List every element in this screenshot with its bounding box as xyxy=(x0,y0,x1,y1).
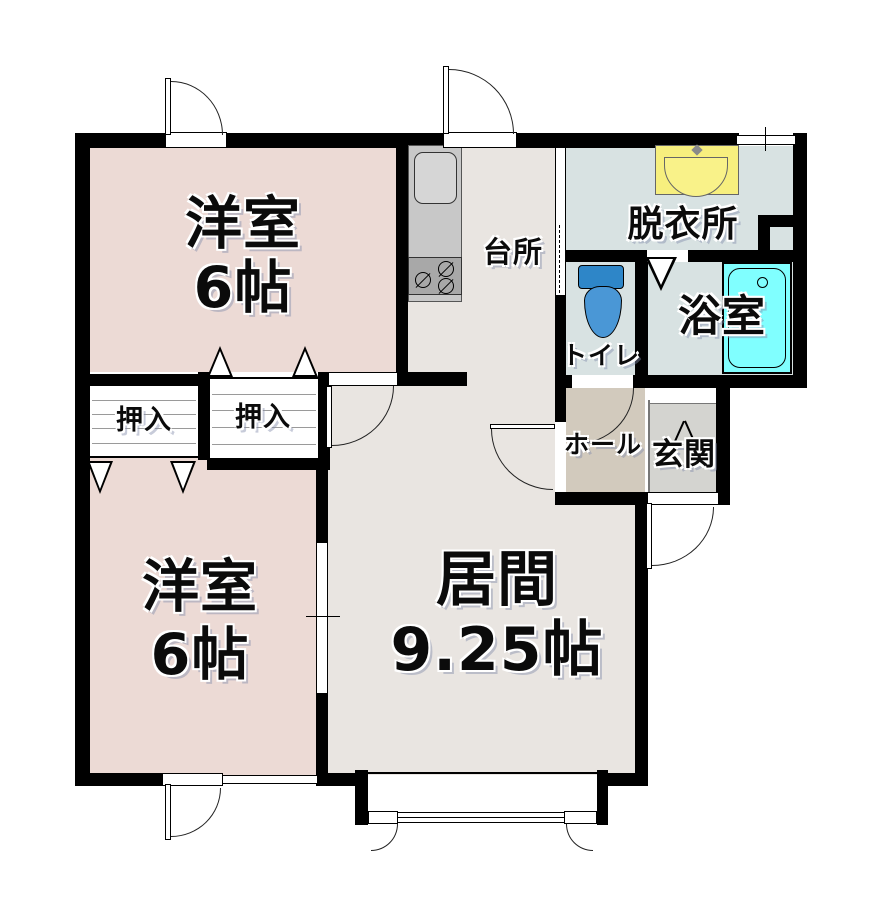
bay-edge-line xyxy=(368,772,597,774)
door-swing-marker xyxy=(90,463,110,489)
room-name: 洋室 xyxy=(185,192,301,256)
sliding-door xyxy=(316,543,328,693)
wall-segment xyxy=(75,374,198,386)
door-sill xyxy=(328,372,398,386)
door-sill xyxy=(443,132,517,148)
closet-label-lower: 押入 xyxy=(116,407,172,434)
sliding-door-dash xyxy=(559,225,560,293)
room-label-living: 居間 9.25帖 xyxy=(390,545,603,685)
wall-segment xyxy=(557,250,647,262)
wall-segment xyxy=(633,375,807,388)
wall-segment xyxy=(597,770,608,825)
window xyxy=(223,775,317,784)
door-swing-marker xyxy=(173,463,193,489)
door-sill xyxy=(162,773,223,786)
room-label-toilet: トイレ xyxy=(562,343,640,368)
sliding-door-tick xyxy=(306,616,340,617)
stove-burner xyxy=(438,278,454,294)
room-label-hall: ホール xyxy=(564,432,642,457)
room-label-kitchen: 台所 xyxy=(483,238,543,267)
room-label-bedroom-bottom: 洋室 6帖 xyxy=(142,553,258,689)
room-area: 6帖 xyxy=(142,621,258,689)
wall-segment xyxy=(316,460,328,545)
room-name: 洋室 xyxy=(142,553,258,621)
wall-segment xyxy=(396,148,408,374)
wall-segment xyxy=(608,773,648,786)
bath-door-marker xyxy=(649,259,673,285)
wall-segment xyxy=(75,773,162,786)
door-arc xyxy=(171,788,221,837)
stove-burner xyxy=(438,261,454,277)
wall-segment xyxy=(555,492,650,505)
door-arc xyxy=(652,507,714,566)
room-label-bath: 浴室 xyxy=(678,296,766,339)
balcony-window-end xyxy=(368,811,398,824)
wall-segment xyxy=(716,388,730,505)
window-tick xyxy=(765,127,766,151)
wall-segment xyxy=(355,770,368,825)
bathtub-drain xyxy=(757,277,768,288)
balcony-window-end xyxy=(564,811,597,824)
wall-segment xyxy=(207,458,330,470)
room-name: 居間 xyxy=(390,545,603,615)
wall-segment xyxy=(793,133,807,387)
wall-segment xyxy=(716,492,730,505)
door-swing-marker xyxy=(295,351,315,375)
closet-shelf-line xyxy=(92,400,196,401)
wall-segment xyxy=(316,691,328,786)
entrance-door-sill xyxy=(648,492,718,505)
wall-segment xyxy=(688,250,793,262)
balcony-shutter-arc xyxy=(371,824,398,851)
closet-shelf-line xyxy=(212,444,316,445)
window xyxy=(737,135,795,145)
closet-label-upper: 押入 xyxy=(235,404,291,431)
balcony-window-line xyxy=(397,817,565,818)
door-arc xyxy=(171,81,223,135)
door-arc xyxy=(449,69,514,134)
room-area: 6帖 xyxy=(185,256,301,320)
door-opening xyxy=(572,375,633,388)
closet-edge-line xyxy=(90,456,198,458)
wall-segment xyxy=(198,372,210,460)
room-area: 9.25帖 xyxy=(390,615,603,685)
room-label-bedroom-top: 洋室 6帖 xyxy=(185,192,301,320)
balcony-shutter-arc xyxy=(566,824,593,851)
stove-burner xyxy=(415,272,431,288)
room-label-entrance: 玄関 xyxy=(652,440,716,471)
floor-plan: 洋室 6帖 台所 脱衣所 トイレ 浴室 押入 押入 ホール 玄関 洋室 6帖 居… xyxy=(0,0,870,920)
wall-segment xyxy=(396,372,467,386)
closet-shelf-line xyxy=(92,443,196,444)
door-swing-marker xyxy=(210,351,230,375)
wall-segment xyxy=(75,133,90,786)
room-label-dressing: 脱衣所 xyxy=(627,207,738,243)
closet-edge-line xyxy=(210,377,318,379)
sliding-door xyxy=(555,148,566,295)
closet-shelf-line xyxy=(212,394,316,395)
entrance-divider-line xyxy=(648,400,650,493)
wall-segment xyxy=(555,375,572,388)
kitchen-sink xyxy=(414,152,457,204)
